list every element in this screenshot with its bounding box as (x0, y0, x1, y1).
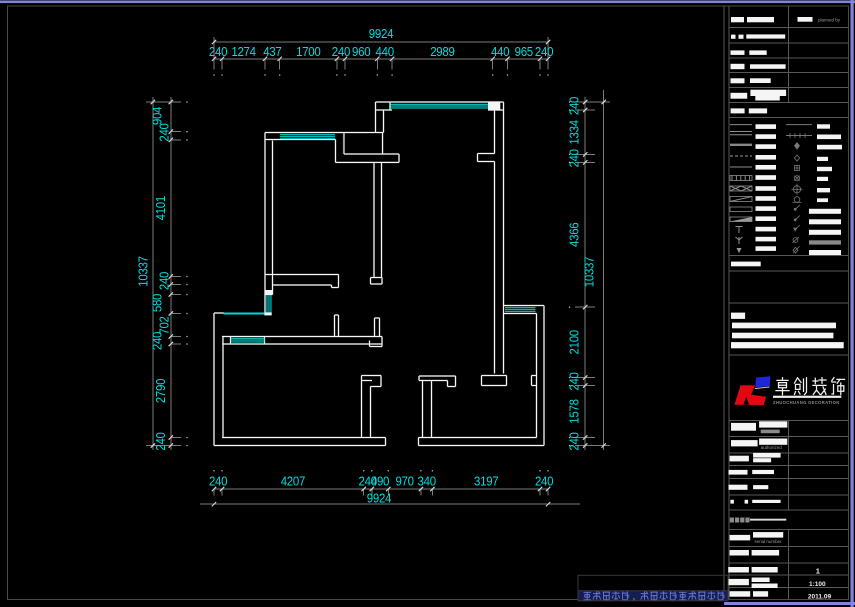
svg-text:9924: 9924 (367, 492, 392, 506)
svg-text:240: 240 (568, 97, 582, 116)
svg-text:240: 240 (158, 123, 172, 142)
svg-text:240: 240 (568, 149, 582, 168)
svg-text:970: 970 (395, 475, 414, 489)
svg-text:9924: 9924 (369, 27, 394, 41)
svg-text:580: 580 (151, 294, 165, 313)
svg-text:240: 240 (151, 332, 165, 351)
svg-text:3197: 3197 (474, 475, 499, 489)
svg-text:authorized: authorized (761, 445, 783, 450)
svg-text:490: 490 (371, 475, 390, 489)
svg-text:240: 240 (209, 475, 228, 489)
svg-text:2100: 2100 (568, 330, 582, 355)
svg-text:240: 240 (535, 45, 554, 59)
svg-text:240: 240 (209, 45, 228, 59)
svg-text:2011.09: 2011.09 (808, 593, 832, 600)
svg-text:serial number: serial number (754, 539, 782, 544)
svg-text:planned by: planned by (818, 18, 841, 23)
svg-text:437: 437 (263, 45, 282, 59)
svg-text:965: 965 (515, 45, 534, 59)
svg-text:960: 960 (352, 45, 371, 59)
svg-text:240: 240 (332, 45, 351, 59)
svg-text:10337: 10337 (583, 256, 597, 287)
svg-text:240: 240 (568, 372, 582, 391)
svg-text:240: 240 (154, 432, 168, 451)
svg-text:4101: 4101 (154, 196, 168, 221)
svg-text:240: 240 (568, 432, 582, 451)
svg-text:440: 440 (376, 45, 395, 59)
svg-text:2790: 2790 (154, 378, 168, 403)
svg-text:904: 904 (151, 107, 165, 126)
svg-text:1578: 1578 (568, 399, 582, 424)
svg-text:240: 240 (158, 272, 172, 291)
svg-text:10337: 10337 (137, 256, 151, 287)
svg-text:1334: 1334 (568, 120, 582, 145)
svg-text:1700: 1700 (296, 45, 321, 59)
svg-text:1:100: 1:100 (809, 581, 826, 588)
svg-text:340: 340 (418, 475, 437, 489)
svg-text:4366: 4366 (568, 222, 582, 247)
svg-text:1: 1 (816, 566, 820, 575)
svg-text:2989: 2989 (430, 45, 455, 59)
svg-text:1274: 1274 (231, 45, 256, 59)
svg-text:4207: 4207 (281, 475, 306, 489)
svg-text:240: 240 (535, 475, 554, 489)
svg-text:440: 440 (491, 45, 510, 59)
svg-text:ZHUOCHUANG DECORATION: ZHUOCHUANG DECORATION (773, 400, 840, 405)
